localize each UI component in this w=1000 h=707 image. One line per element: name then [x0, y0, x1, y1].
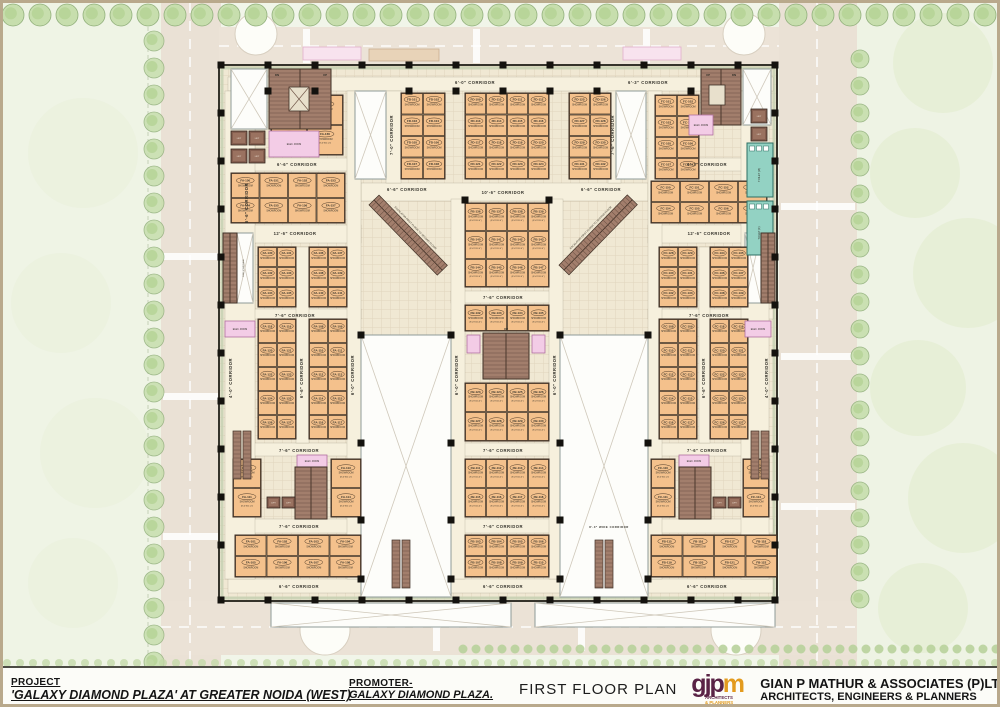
- shop-unit-type: SHOWROOM: [531, 501, 546, 504]
- column: [735, 597, 742, 604]
- firm-subtitle: ARCHITECTS, ENGINEERS & PLANNERS: [760, 691, 1000, 703]
- shop-unit-type: SHOWROOM: [754, 566, 769, 569]
- firm-block: gjpm ARCHITECTS & PLANNERS GIAN P MATHUR…: [691, 672, 1000, 707]
- tree-icon: [488, 4, 510, 26]
- plan-label: UP: [706, 73, 710, 77]
- corridor-label: 12'-6" CORRIDOR: [688, 231, 731, 236]
- shop-unit-id: FA-122: [263, 372, 273, 376]
- void-atrium: [231, 69, 267, 129]
- circle-shape: [147, 142, 158, 153]
- shop-unit-type: SHOWROOM: [468, 425, 483, 428]
- tree-icon: [144, 517, 164, 537]
- column: [594, 62, 601, 69]
- stair-central: [483, 333, 529, 379]
- shop-unit: FC-109SHOWROOM: [679, 320, 697, 343]
- column: [218, 398, 225, 405]
- shop-unit: FA-109SHOWROOM: [329, 320, 347, 343]
- planter: [623, 47, 681, 60]
- shop-unit-id: FA-108: [314, 324, 324, 328]
- shop-unit: FC-111SHOWROOM(8'-0"X11'-0"): [652, 489, 675, 517]
- shop-unit-id: FB-112: [492, 466, 502, 470]
- shop-unit: FA-135SHOWROOM: [278, 288, 296, 307]
- corridor-label: 7'-6" CORRIDOR: [687, 448, 727, 453]
- shop-unit: FA-127SHOWROOM: [278, 416, 296, 439]
- circle-shape: [147, 277, 158, 288]
- shop-unit: FB-109SHOWROOM: [508, 557, 528, 577]
- shop-unit-id: FD-120: [533, 141, 543, 145]
- shop-unit: FA-114SHOWROOM(8'-0"X11'-0"): [332, 489, 361, 517]
- plan-label: DN: [275, 73, 279, 77]
- entry-canopy: [369, 49, 439, 61]
- tree-icon: [731, 4, 753, 26]
- rect-shape: [757, 204, 762, 209]
- lift: LIFT: [267, 497, 280, 508]
- shrub: [576, 645, 585, 654]
- circle-shape: [147, 520, 158, 531]
- electrical-room: ELEC. ROOM: [745, 321, 771, 337]
- electrical-room: ELEC. ROOM: [679, 455, 709, 467]
- shop-unit-type: SHOWROOM: [656, 472, 671, 475]
- column: [772, 398, 779, 405]
- tree-icon: [785, 4, 807, 26]
- circle-shape: [545, 7, 557, 19]
- column: [557, 332, 564, 339]
- shop-unit-type: SHOWROOM: [260, 426, 275, 429]
- shop-unit: FC-135SHOWROOM: [730, 248, 748, 267]
- shop-unit-id: FA-113: [333, 372, 343, 376]
- firm-logo: gjpm ARCHITECTS & PLANNERS: [691, 672, 753, 707]
- shop-unit-type: SHOWROOM: [330, 277, 345, 280]
- shop-unit-id: FA-119: [282, 324, 292, 328]
- corridor-label: 6'-6" CORRIDOR: [387, 187, 427, 192]
- shrub: [940, 645, 949, 654]
- shop-unit-id: FA-157: [326, 204, 336, 208]
- tree-icon: [164, 4, 186, 26]
- tree-icon: [144, 382, 164, 402]
- circle-shape: [853, 269, 863, 279]
- circle-shape: [147, 547, 158, 558]
- shop-unit-id: FC-102: [683, 99, 693, 103]
- promoter-block: PROMOTER- GALAXY DIAMOND PLAZA.: [349, 678, 493, 701]
- shop-unit: FD-106SHOWROOM: [424, 137, 445, 158]
- shop-unit-id: FA-105: [246, 560, 256, 564]
- circle-shape: [329, 7, 341, 19]
- circle-shape: [842, 7, 854, 19]
- shop-unit-dims: (8'-0"X11'-0"): [511, 276, 523, 278]
- shop-unit-type: SHOWROOM: [531, 317, 546, 320]
- shop-unit: FB-110SHOWROOM: [529, 557, 549, 577]
- shop-unit-id: FA-114: [341, 495, 351, 499]
- shop-unit-type: SHOWROOM: [691, 566, 706, 569]
- electrical-room: ELEC. ROOM: [689, 115, 713, 135]
- shop-unit: FB-116SHOWROOM: [683, 536, 714, 556]
- shop-unit: FC-111SHOWROOM: [679, 344, 697, 367]
- column: [358, 576, 365, 583]
- shop-unit: FA-153SHOWROOM: [317, 174, 345, 198]
- shrub: [472, 645, 481, 654]
- corridor-label: 7'-6" CORRIDOR: [279, 524, 319, 529]
- shop-unit-id: FB-146: [512, 266, 522, 270]
- shop-unit: FB-117SHOWROOM: [715, 536, 746, 556]
- shop-unit-dims: (8'-0"X11'-0"): [469, 429, 481, 431]
- shop-unit-dims: (8'-0"X11'-0"): [469, 505, 481, 507]
- shop-unit-id: FA-134: [263, 291, 273, 295]
- shop-unit-type: SHOWROOM: [593, 125, 608, 128]
- shop-unit-id: FD-103: [407, 119, 417, 123]
- shop-unit: FB-147SHOWROOM(8'-0"X11'-0"): [529, 260, 549, 287]
- shop-unit-type: SHOWROOM: [260, 402, 275, 405]
- shop-unit-type: SHOWROOM: [489, 243, 504, 246]
- shop-unit-id: FB-115: [471, 495, 481, 499]
- circle-shape: [147, 358, 158, 369]
- shop-unit-id: FB-142: [512, 238, 522, 242]
- shop-unit-dims: (8'-0"X11'-0"): [490, 505, 502, 507]
- shop-unit-dims: (8'-0"X11'-0"): [532, 429, 544, 431]
- column: [312, 88, 319, 95]
- shop-unit-id: FB-133: [491, 311, 501, 315]
- shop-unit: FA-157SHOWROOM: [317, 199, 345, 223]
- circle-shape: [248, 7, 260, 19]
- shop-unit-type: SHOWROOM: [311, 277, 326, 280]
- tree-icon: [3, 4, 24, 26]
- shop-unit-type: SHOWROOM: [330, 297, 345, 300]
- void-atrium: [237, 233, 253, 303]
- shop-unit: FB-116SHOWROOM(8'-0"X11'-0"): [487, 489, 507, 517]
- shop-unit-dims: (8'-0"X11'-0"): [532, 248, 544, 250]
- shop-unit: FB-125SHOWROOM(8'-0"X11'-0"): [508, 384, 528, 412]
- rect-shape: [757, 146, 762, 151]
- shop-unit: FB-146SHOWROOM(8'-0"X11'-0"): [508, 260, 528, 287]
- shop-unit-type: SHOWROOM: [330, 402, 345, 405]
- shop-unit: FC-154SHOWROOM: [652, 203, 680, 223]
- lift: LIFT: [249, 131, 265, 145]
- shop-unit-type: SHOWROOM: [593, 146, 608, 149]
- shop-unit-type: SHOWROOM: [712, 257, 727, 260]
- shop-unit-id: FD-124: [533, 162, 543, 166]
- shop-unit-type: SHOWROOM: [489, 317, 504, 320]
- shop-unit: FB-123SHOWROOM(8'-0"X11'-0"): [466, 384, 486, 412]
- shop-unit: FC-114SHOWROOM: [660, 392, 678, 415]
- shop-unit: FD-101SHOWROOM: [402, 94, 423, 115]
- shop-unit-type: SHOWROOM: [572, 125, 587, 128]
- shrub: [693, 645, 702, 654]
- shop-unit-type: SHOWROOM: [243, 545, 258, 548]
- shop-unit: FB-113SHOWROOM(8'-0"X11'-0"): [508, 460, 528, 488]
- shop-unit-dims: (8'-0"X11'-0"): [319, 143, 331, 145]
- shop-unit-id: FD-130: [595, 141, 605, 145]
- shop-unit-id: FC-156: [718, 206, 728, 210]
- shop-unit: FC-125SHOWROOM: [730, 392, 748, 415]
- toilet-block: TOILET (M): [747, 143, 773, 197]
- shop-unit-id: FC-135: [733, 251, 743, 255]
- tree-icon: [144, 85, 164, 105]
- shop-unit-dims: (8'-0"X11'-0"): [532, 476, 544, 478]
- shop-unit-type: SHOWROOM: [681, 147, 696, 150]
- column: [462, 197, 469, 204]
- shop-unit: FC-102SHOWROOM: [678, 96, 699, 116]
- shop-unit: FD-132SHOWROOM: [591, 158, 611, 179]
- shop-unit-id: FA-126: [263, 420, 273, 424]
- shop-unit-id: FC-150: [660, 185, 670, 189]
- tree-icon: [144, 625, 164, 645]
- electrical-room-label: ELEC. ROOM: [287, 144, 302, 146]
- shop-unit-dims: (8'-0"X11'-0"): [511, 476, 523, 478]
- circle-shape: [734, 7, 746, 19]
- lift: LIFT: [231, 149, 247, 163]
- shop-unit: FD-125SHOWROOM: [570, 94, 590, 115]
- shop-unit: FC-117SHOWROOM: [679, 416, 697, 439]
- column: [359, 62, 366, 69]
- shop-unit: FA-108SHOWROOM: [310, 320, 328, 343]
- circle-shape: [950, 7, 962, 19]
- shop-unit-id: FA-136: [314, 251, 324, 255]
- shop-unit-type: SHOWROOM: [661, 330, 676, 333]
- shop-unit-type: SHOWROOM: [260, 257, 275, 260]
- shop-unit-type: SHOWROOM: [311, 297, 326, 300]
- column: [448, 576, 455, 583]
- shop-unit-id: FD-125: [574, 98, 584, 102]
- shop-unit-type: SHOWROOM: [722, 566, 737, 569]
- shop-unit-id: FB-143: [533, 238, 543, 242]
- shop-unit-type: SHOWROOM: [266, 210, 281, 213]
- shop-unit-id: FB-124: [491, 390, 501, 394]
- shop-unit-type: SHOWROOM: [659, 105, 674, 108]
- shop-unit: FA-125SHOWROOM: [278, 392, 296, 415]
- shop-unit-id: FD-129: [574, 141, 584, 145]
- shop-unit-id: FC-115: [683, 396, 693, 400]
- shop-unit: FC-108SHOWROOM: [660, 320, 678, 343]
- shop-unit-id: FA-113: [341, 466, 351, 470]
- shop-unit-id: FD-115: [513, 119, 523, 123]
- shop-unit-id: FD-106: [429, 141, 439, 145]
- shop-unit-id: FB-108: [491, 560, 501, 564]
- shop-unit-type: SHOWROOM: [279, 330, 294, 333]
- tree-icon: [650, 4, 672, 26]
- shop-unit-type: SHOWROOM: [339, 472, 354, 475]
- shop-unit-type: SHOWROOM: [510, 472, 525, 475]
- tree-icon: [839, 4, 861, 26]
- circle-shape: [853, 134, 863, 144]
- column: [358, 517, 365, 524]
- corridor-label: 6'-0" CORRIDOR: [455, 80, 495, 85]
- column: [688, 597, 695, 604]
- column: [265, 88, 272, 95]
- shop-unit-id: FC-109: [682, 324, 692, 328]
- circle-shape: [653, 7, 665, 19]
- shop-unit: FA-111SHOWROOM(8'-0"X11'-0"): [234, 489, 261, 517]
- shop-unit: FB-117SHOWROOM(8'-0"X11'-0"): [508, 489, 528, 517]
- circle-shape: [147, 34, 158, 45]
- shop-unit: FB-132SHOWROOM(8'-0"X11'-0"): [466, 306, 486, 331]
- project-label: PROJECT: [11, 677, 349, 688]
- rect-shape: [467, 335, 480, 353]
- shop-unit-id: FA-166: [320, 132, 330, 136]
- shop-unit-id: FB-137: [491, 210, 501, 214]
- shrub: [914, 645, 923, 654]
- column: [218, 597, 225, 604]
- shop-unit: FA-136SHOWROOM: [310, 248, 328, 267]
- shop-unit-id: FD-110: [492, 98, 502, 102]
- void-atrium: [271, 603, 511, 627]
- shop-unit-id: FA-111: [333, 348, 343, 352]
- tree-icon: [851, 158, 869, 176]
- shop-unit-id: FA-102: [277, 539, 287, 543]
- shop-unit: FC-115SHOWROOM: [679, 392, 697, 415]
- shop-unit-id: FB-107: [470, 560, 480, 564]
- shrub: [810, 645, 819, 654]
- tree-icon: [144, 247, 164, 267]
- shop-unit: FC-121SHOWROOM: [730, 344, 748, 367]
- shop-unit: FC-110SHOWROOM: [660, 344, 678, 367]
- tree-icon: [851, 428, 869, 446]
- shop-unit-id: FB-113: [513, 466, 523, 470]
- shop-unit-type: SHOWROOM: [680, 426, 695, 429]
- tree-icon: [851, 239, 869, 257]
- circle-shape: [853, 539, 863, 549]
- shop-unit: FB-135SHOWROOM(8'-0"X11'-0"): [529, 306, 549, 331]
- column: [448, 517, 455, 524]
- circle-shape: [221, 7, 233, 19]
- tree-icon: [144, 274, 164, 294]
- circle-shape: [113, 7, 125, 19]
- firm-logo-caption: ARCHITECTS & PLANNERS: [705, 696, 733, 705]
- faint-tree: [28, 98, 138, 208]
- shop-unit-type: SHOWROOM: [659, 147, 674, 150]
- shop-unit: FA-118SHOWROOM: [259, 320, 277, 343]
- shop-unit-id: FC-122: [714, 372, 724, 376]
- shop-unit: FB-143SHOWROOM(8'-0"X11'-0"): [529, 232, 549, 259]
- shop-unit-type: SHOWROOM: [680, 354, 695, 357]
- column: [406, 597, 413, 604]
- circle-shape: [147, 628, 158, 639]
- shop-unit-type: SHOWROOM: [572, 168, 587, 171]
- shop-unit: FD-103SHOWROOM: [402, 115, 423, 136]
- circle-shape: [147, 169, 158, 180]
- shop-unit: FD-116SHOWROOM: [529, 115, 549, 136]
- shop-unit-type: SHOWROOM: [275, 545, 290, 548]
- tree-icon: [851, 455, 869, 473]
- shop-unit-id: FA-151: [269, 179, 279, 183]
- shop-unit-type: SHOWROOM: [489, 168, 504, 171]
- shrub: [849, 645, 858, 654]
- shop-unit: FD-121SHOWROOM: [466, 158, 486, 179]
- shop-unit: FD-108SHOWROOM: [424, 158, 445, 179]
- shop-unit: FD-128SHOWROOM: [591, 115, 611, 136]
- shop-unit-type: SHOWROOM: [731, 277, 746, 280]
- circle-shape: [302, 7, 314, 19]
- circle-shape: [356, 7, 368, 19]
- corridor-label: 6'-6" CORRIDOR: [581, 187, 621, 192]
- rect-shape: [750, 146, 755, 151]
- shop-unit: FB-112SHOWROOM(8'-0"X11'-0"): [487, 460, 507, 488]
- shop-unit-type: SHOWROOM: [468, 396, 483, 399]
- tree-icon: [893, 4, 915, 26]
- column: [358, 332, 365, 339]
- shop-unit: FA-115SHOWROOM: [329, 392, 347, 415]
- shop-unit-type: SHOWROOM: [330, 330, 345, 333]
- lift-label: LIFT: [732, 503, 737, 505]
- shop-unit: FB-120SHOWROOM: [683, 557, 714, 577]
- tree-icon: [515, 4, 537, 26]
- tree-icon: [144, 490, 164, 510]
- circle-shape: [147, 223, 158, 234]
- shop-unit: FB-137SHOWROOM(8'-0"X11'-0"): [487, 204, 507, 231]
- column: [453, 62, 460, 69]
- shop-unit-type: SHOWROOM: [731, 257, 746, 260]
- shop-unit-id: FD-127: [574, 119, 584, 123]
- shop-unit-type: SHOWROOM: [339, 501, 354, 504]
- column: [218, 254, 225, 261]
- tree-icon: [758, 4, 780, 26]
- shop-unit: FD-107SHOWROOM: [402, 158, 423, 179]
- shop-unit: FA-120SHOWROOM: [259, 344, 277, 367]
- shop-unit-type: SHOWROOM: [731, 354, 746, 357]
- shop-unit: FA-134SHOWROOM: [259, 288, 277, 307]
- shop-unit-dims: (8'-0"X11'-0"): [532, 400, 544, 402]
- elevator: [709, 85, 725, 105]
- tree-icon: [83, 4, 105, 26]
- circle-shape: [147, 304, 158, 315]
- shop-unit-type: SHOWROOM: [510, 396, 525, 399]
- shop-unit-type: SHOWROOM: [405, 168, 420, 171]
- shop-unit: FB-136SHOWROOM(8'-0"X11'-0"): [466, 204, 486, 231]
- shop-unit-type: SHOWROOM: [240, 501, 255, 504]
- shop-unit: FC-112SHOWROOM: [660, 368, 678, 391]
- shop-unit-type: SHOWROOM: [510, 243, 525, 246]
- shop-unit: FA-132SHOWROOM: [259, 268, 277, 287]
- tree-icon: [920, 4, 942, 26]
- shop-unit-type: SHOWROOM: [311, 354, 326, 357]
- circle-shape: [853, 188, 863, 198]
- shop-unit: FA-113SHOWROOM: [329, 368, 347, 391]
- tree-icon: [326, 4, 348, 26]
- shop-unit: FC-114SHOWROOM(8'-0"X11'-0"): [744, 489, 769, 517]
- shop-unit-dims: (8'-0"X11'-0"): [511, 429, 523, 431]
- shop-unit-id: FB-147: [533, 266, 543, 270]
- shop-unit: FB-115SHOWROOM(8'-0"X11'-0"): [466, 489, 486, 517]
- corridor-label: 6'-6" CORRIDOR: [687, 584, 727, 589]
- lift-label: LIFT: [757, 116, 762, 118]
- shop-unit-type: SHOWROOM: [468, 215, 483, 218]
- column: [358, 440, 365, 447]
- shrub: [745, 645, 754, 654]
- shop-unit-type: SHOWROOM: [260, 354, 275, 357]
- tree-icon: [596, 4, 618, 26]
- shop-unit-dims: (8'-0"X11'-0"): [511, 220, 523, 222]
- shrub: [706, 645, 715, 654]
- column: [645, 576, 652, 583]
- corridor-label: 4'-0" CORRIDOR: [764, 358, 769, 398]
- shrub: [784, 645, 793, 654]
- shop-unit-id: FA-112: [314, 372, 324, 376]
- shop-unit-dims: (8'-0"X11'-0"): [490, 476, 502, 478]
- corridor-label: 6'-6" CORRIDOR: [701, 358, 706, 398]
- toilet-label: TOILET (M): [757, 168, 761, 182]
- shop-unit-id: FD-118: [492, 141, 502, 145]
- shop-unit: FC-110SHOWROOM(8'-0"X11'-0"): [652, 460, 675, 488]
- shop-unit-id: FA-150: [240, 179, 250, 183]
- shop-unit: FD-113SHOWROOM: [466, 115, 486, 136]
- shop-unit: FB-142SHOWROOM(8'-0"X11'-0"): [508, 232, 528, 259]
- shop-unit-type: SHOWROOM: [489, 271, 504, 274]
- shop-unit-type: SHOWROOM: [427, 125, 442, 128]
- shop-unit-type: SHOWROOM: [330, 426, 345, 429]
- shop-unit-type: SHOWROOM: [680, 378, 695, 381]
- shop-unit: FB-111SHOWROOM(8'-0"X11'-0"): [466, 460, 486, 488]
- shop-unit-type: SHOWROOM: [275, 566, 290, 569]
- plan-label: UP: [504, 327, 508, 331]
- shop-unit-id: FA-114: [314, 396, 324, 400]
